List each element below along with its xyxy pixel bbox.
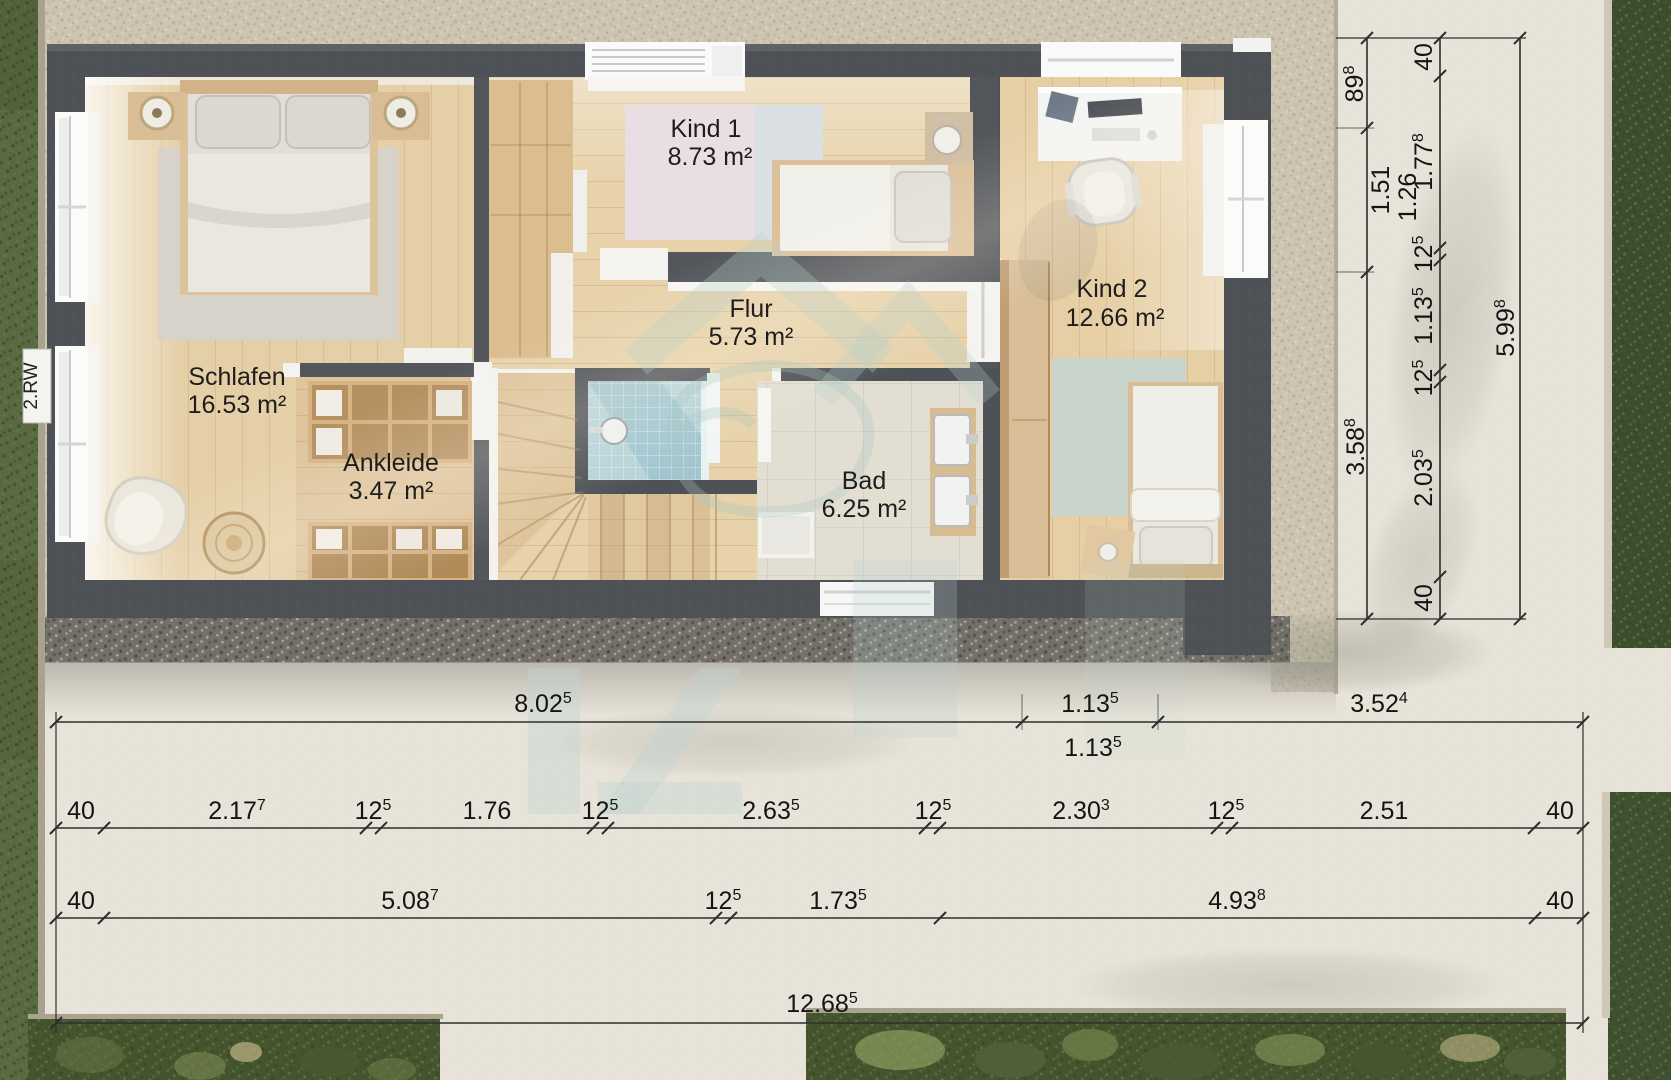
svg-text:Kind 2: Kind 2	[1077, 275, 1148, 303]
svg-text:40: 40	[67, 797, 95, 825]
svg-text:8.73 m²: 8.73 m²	[668, 143, 753, 171]
svg-text:6.25 m²: 6.25 m²	[822, 495, 907, 523]
svg-text:40: 40	[1410, 584, 1438, 612]
svg-text:2.RW: 2.RW	[21, 362, 42, 409]
svg-text:Ankleide: Ankleide	[343, 449, 439, 477]
svg-text:40: 40	[1546, 797, 1574, 825]
svg-text:12.685: 12.685	[786, 990, 858, 1018]
svg-text:16.53 m²: 16.53 m²	[188, 391, 287, 419]
svg-text:1.51: 1.51	[1367, 166, 1395, 215]
svg-text:Bad: Bad	[842, 467, 886, 495]
svg-text:Flur: Flur	[729, 295, 772, 323]
svg-text:Kind 1: Kind 1	[671, 115, 742, 143]
svg-text:3.47 m²: 3.47 m²	[349, 477, 434, 505]
svg-text:1.76: 1.76	[463, 797, 512, 825]
svg-text:12.66 m²: 12.66 m²	[1066, 304, 1165, 332]
svg-text:40: 40	[67, 887, 95, 915]
svg-text:2.51: 2.51	[1360, 797, 1409, 825]
svg-text:40: 40	[1546, 887, 1574, 915]
svg-text:5.73 m²: 5.73 m²	[709, 323, 794, 351]
svg-text:40: 40	[1410, 43, 1438, 71]
svg-text:Schlafen: Schlafen	[188, 363, 285, 391]
